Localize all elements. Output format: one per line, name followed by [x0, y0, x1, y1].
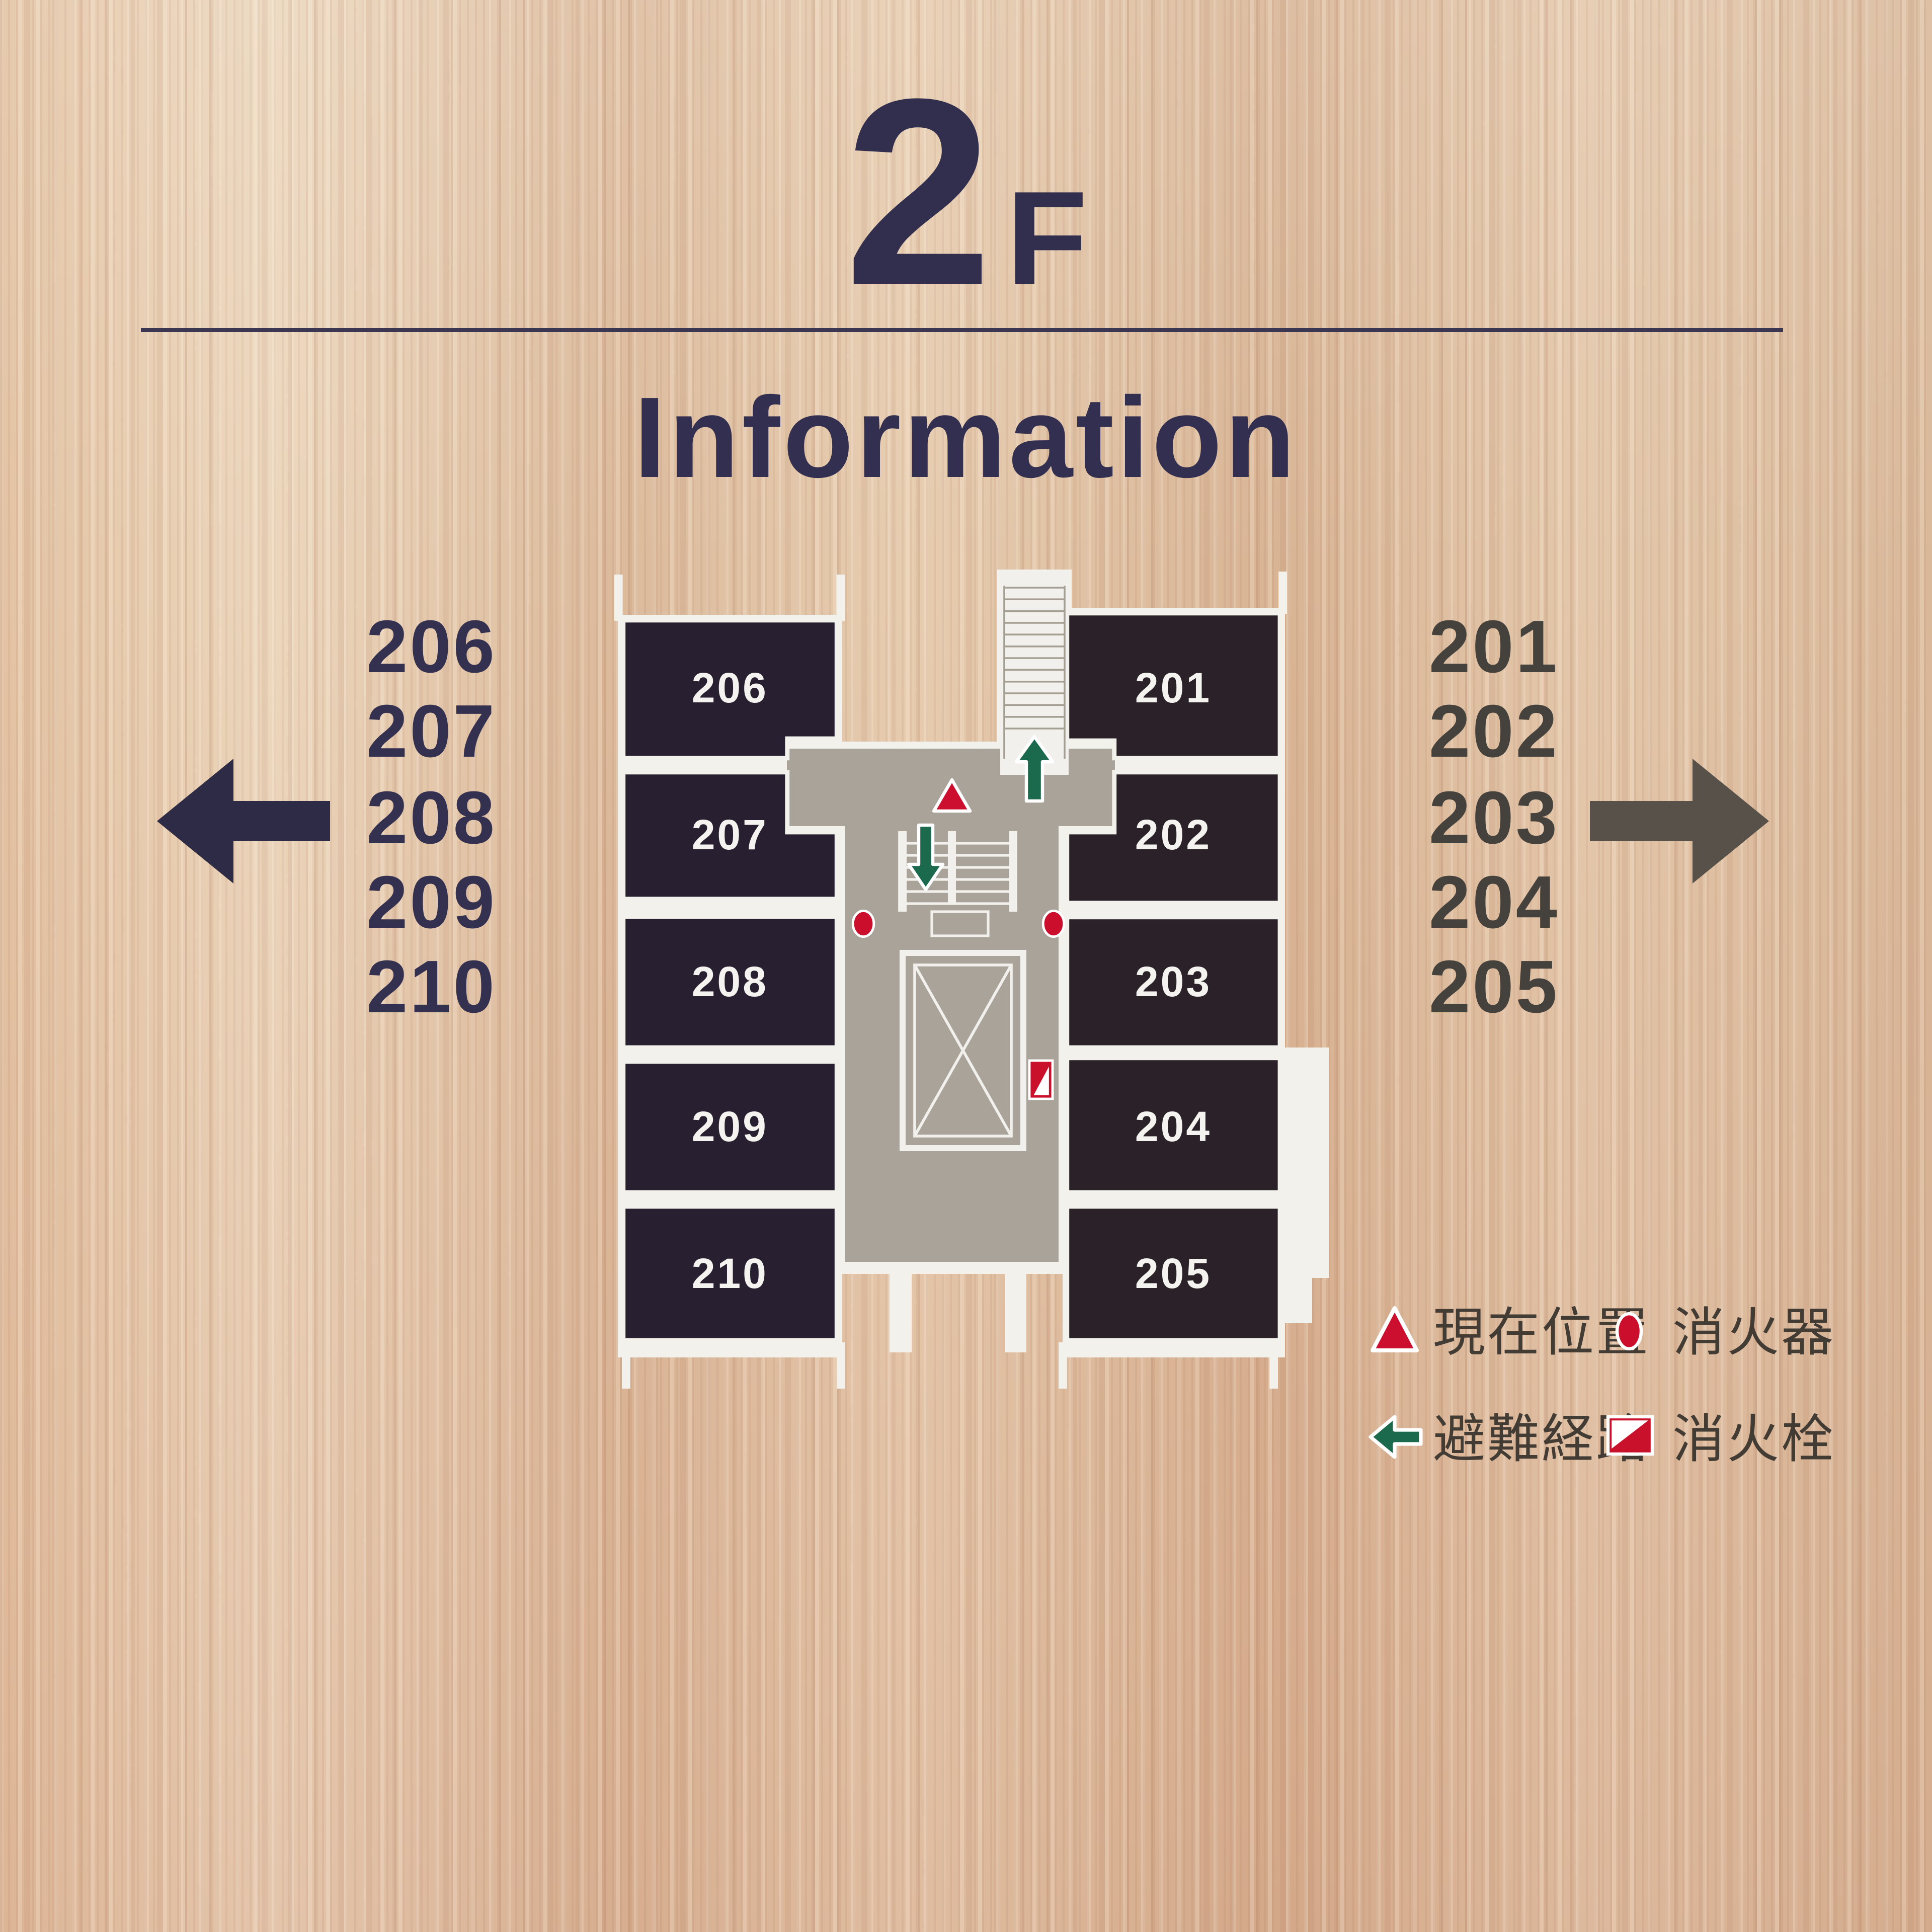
- page-title: Information: [0, 382, 1932, 497]
- wall-tick: [1269, 1342, 1278, 1389]
- directory-room: 205: [1429, 946, 1559, 1031]
- wall-tick: [836, 575, 845, 621]
- evacuation-route-arrow-icon: [1369, 1415, 1423, 1459]
- signage-photo: 2 F Information 206 207 208 209 210 201 …: [0, 0, 1932, 1932]
- fire-hydrant-marker: [1029, 1061, 1053, 1099]
- bottom-wall: [1059, 1342, 1278, 1354]
- stair-rail: [898, 831, 907, 912]
- map-room-label: 208: [692, 958, 768, 1005]
- map-room-label: 204: [1135, 1103, 1212, 1150]
- directory-left: 206 207 208 209 210: [366, 606, 497, 1031]
- map-room-label: 201: [1135, 664, 1212, 711]
- map-room-label: 210: [692, 1250, 768, 1297]
- legend-label: 消火栓: [1672, 1411, 1835, 1467]
- floor-letter: F: [1006, 171, 1087, 304]
- header-divider-line: [141, 328, 1783, 333]
- map-room-label: 202: [1135, 811, 1212, 858]
- directory-room: 208: [366, 776, 497, 861]
- directory-room: 204: [1429, 861, 1559, 946]
- directory-room: 206: [366, 606, 497, 691]
- arrow-right-icon: [1590, 755, 1773, 888]
- wall-tick: [622, 1342, 630, 1389]
- directory-right: 201 202 203 204 205: [1429, 606, 1559, 1031]
- fire-hydrant-icon: [1606, 1415, 1654, 1457]
- floor-sign: 2 F Information 206 207 208 209 210 201 …: [0, 0, 1932, 1932]
- current-location-triangle-icon: [1371, 1304, 1419, 1356]
- directory-room: 201: [1429, 606, 1559, 691]
- directory-room: 207: [366, 691, 497, 776]
- fire-extinguisher-dot-icon: [1614, 1310, 1644, 1352]
- directory-room: 203: [1429, 776, 1559, 861]
- legend-label: 消火器: [1672, 1304, 1835, 1360]
- fire-extinguisher-dot-left: [853, 911, 874, 936]
- map-room-label: 207: [692, 811, 768, 858]
- map-room-label: 209: [692, 1103, 768, 1150]
- floor-heading: 2 F: [0, 60, 1932, 326]
- directory-room: 210: [366, 946, 497, 1031]
- directory-room: 209: [366, 861, 497, 946]
- wall-tick: [1059, 1342, 1067, 1389]
- map-room-label: 205: [1135, 1250, 1212, 1297]
- floor-plan-map: 206 207 208 209 210 201 202 203 204 205: [580, 553, 1352, 1419]
- floor-number: 2: [845, 60, 993, 326]
- map-room-label: 206: [692, 664, 768, 711]
- bottom-wall: [622, 1342, 845, 1354]
- wall-tick: [1278, 572, 1287, 614]
- wall-tick: [614, 575, 623, 621]
- directory-room: 202: [1429, 691, 1559, 776]
- arrow-left-icon: [153, 755, 330, 888]
- fire-extinguisher-dot-right: [1043, 911, 1064, 936]
- annex-block: [1280, 1048, 1329, 1323]
- entry-wall: [1005, 1268, 1026, 1352]
- entry-wall: [890, 1268, 912, 1352]
- stair-wall: [1009, 831, 1017, 912]
- map-room-label: 203: [1135, 958, 1212, 1005]
- wall-tick: [837, 1342, 845, 1389]
